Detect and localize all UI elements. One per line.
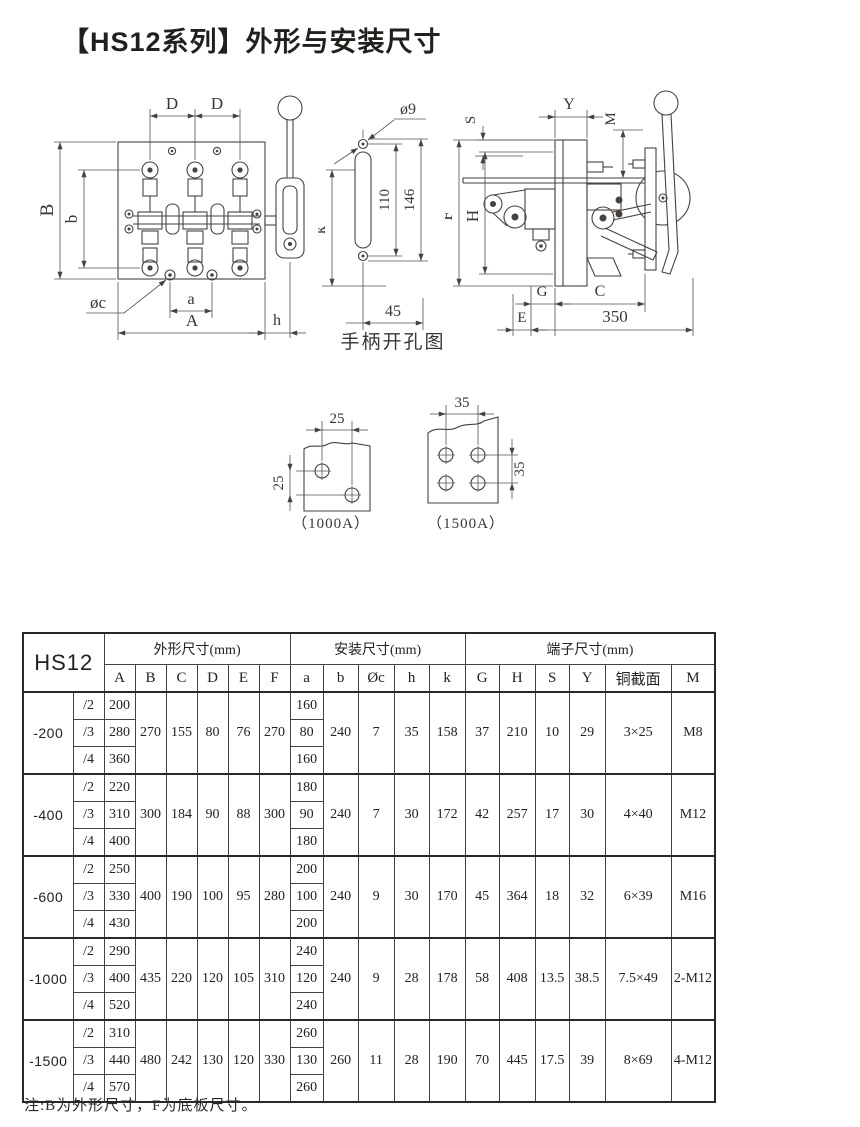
table-cell: 220: [166, 938, 197, 1020]
table-cell: 105: [228, 938, 259, 1020]
group-header-terminal: 端子尺寸(mm): [465, 633, 715, 665]
dim-label-h: h: [273, 312, 281, 329]
table-row: -1000/2290435220120105310240240928178584…: [23, 938, 715, 966]
cutout-shape: [355, 130, 371, 330]
table-cell: 18: [535, 856, 569, 938]
model-cell: -200: [23, 692, 73, 774]
table-cell: 58: [465, 938, 499, 1020]
column-header: E: [228, 665, 259, 693]
dim-label-110: 110: [377, 189, 393, 211]
table-cell: 170: [429, 856, 465, 938]
column-header: Y: [569, 665, 605, 693]
table-cell: 430: [104, 911, 135, 939]
column-header: C: [166, 665, 197, 693]
dim-label-D2: D: [211, 94, 223, 113]
column-header: a: [290, 665, 323, 693]
column-header: h: [394, 665, 429, 693]
variant-cell: /3: [73, 966, 104, 993]
table-row: -200/22002701558076270160240735158372101…: [23, 692, 715, 720]
table-cell: 160: [290, 747, 323, 775]
dim-label-phi9: ø9: [400, 101, 416, 118]
table-cell: 270: [135, 692, 166, 774]
cutout-dimensions: ø9 110 146 k: [318, 101, 428, 330]
variant-cell: /2: [73, 774, 104, 802]
column-header: F: [259, 665, 290, 693]
table-cell: 260: [290, 1075, 323, 1103]
table-row: -400/22203001849088300180240730172422571…: [23, 774, 715, 802]
table-cell: 7: [358, 692, 394, 774]
dim-label-E: E: [517, 310, 526, 326]
table-cell: 360: [104, 747, 135, 775]
dim-label-25h: 25: [330, 411, 345, 427]
page-title: 【HS12系列】外形与安装尺寸: [62, 20, 442, 59]
figure-hole-1500A: 35 35: [396, 391, 536, 515]
table-cell: 445: [499, 1020, 535, 1102]
table-cell: 220: [104, 774, 135, 802]
terminal-plate-1000A: [304, 443, 370, 511]
front-view-dimensions: D D B b øc a: [40, 94, 306, 340]
column-header: H: [499, 665, 535, 693]
dim-label-G: G: [537, 284, 548, 300]
table-cell: 172: [429, 774, 465, 856]
hole-1000A-caption: （1000A）: [266, 512, 396, 533]
table-cell: 210: [499, 692, 535, 774]
footnote: 注:B为外形尺寸，F为底板尺寸。: [24, 1094, 258, 1115]
table-cell: 364: [499, 856, 535, 938]
table-cell: 11: [358, 1020, 394, 1102]
model-cell: -1000: [23, 938, 73, 1020]
table-cell: 95: [228, 856, 259, 938]
table-cell: 4×40: [605, 774, 671, 856]
table-cell: 270: [259, 692, 290, 774]
dim-label-Y: Y: [563, 96, 575, 113]
table-cell: 90: [197, 774, 228, 856]
table-cell: 130: [197, 1020, 228, 1102]
table-cell: 520: [104, 993, 135, 1021]
dim-label-a: a: [187, 291, 194, 308]
table-cell: 10: [535, 692, 569, 774]
variant-cell: /4: [73, 747, 104, 775]
variant-cell: /2: [73, 856, 104, 884]
table-row: -600/22504001901009528020024093017045364…: [23, 856, 715, 884]
table-cell: 310: [259, 938, 290, 1020]
dim-label-k: k: [318, 226, 329, 234]
dim-label-F: F: [445, 211, 456, 220]
table-cell: 120: [290, 966, 323, 993]
table-cell: 240: [323, 692, 358, 774]
table-cell: 240: [323, 774, 358, 856]
variant-cell: /3: [73, 720, 104, 747]
table-cell: 29: [569, 692, 605, 774]
table-cell: 400: [135, 856, 166, 938]
table-cell: 28: [394, 938, 429, 1020]
table-cell: 17: [535, 774, 569, 856]
table-cell: 240: [290, 938, 323, 966]
figure-side-view: S Y M F H: [445, 86, 725, 351]
table-cell: 88: [228, 774, 259, 856]
variant-cell: /4: [73, 911, 104, 939]
table-cell: 408: [499, 938, 535, 1020]
table-cell: 480: [135, 1020, 166, 1102]
table-cell: 190: [429, 1020, 465, 1102]
dimension-table: HS12 外形尺寸(mm) 安装尺寸(mm) 端子尺寸(mm) ABCDEFab…: [22, 632, 716, 1103]
table-cell: 240: [290, 993, 323, 1021]
table-cell: 178: [429, 938, 465, 1020]
table-cell: 6×39: [605, 856, 671, 938]
column-header: S: [535, 665, 569, 693]
table-cell: 37: [465, 692, 499, 774]
dim-label-C: C: [595, 283, 606, 300]
table-cell: 100: [290, 884, 323, 911]
table-cell: 200: [104, 692, 135, 720]
table-cell: 180: [290, 774, 323, 802]
model-cell: -1500: [23, 1020, 73, 1102]
table-cell: 310: [104, 1020, 135, 1048]
variant-cell: /4: [73, 829, 104, 857]
switch-poles: [133, 162, 260, 276]
terminal-plate-1500A: [428, 417, 498, 503]
table-cell: 260: [323, 1020, 358, 1102]
table-cell: 200: [290, 911, 323, 939]
variant-cell: /4: [73, 993, 104, 1021]
table-cell: 280: [259, 856, 290, 938]
table-cell: 160: [290, 692, 323, 720]
column-header: 铜截面: [605, 665, 671, 693]
table-cell: 300: [135, 774, 166, 856]
table-cell: 8×69: [605, 1020, 671, 1102]
column-header: Øc: [358, 665, 394, 693]
table-cell: 130: [290, 1048, 323, 1075]
table-row: -1500/2310480242130120330260260112819070…: [23, 1020, 715, 1048]
table-cell: 290: [104, 938, 135, 966]
variant-cell: /3: [73, 884, 104, 911]
table-cell: 310: [104, 802, 135, 829]
dimension-table-wrap: HS12 外形尺寸(mm) 安装尺寸(mm) 端子尺寸(mm) ABCDEFab…: [22, 632, 716, 1103]
hole-1000A-dimensions: 25 25: [271, 411, 368, 511]
table-cell: 120: [228, 1020, 259, 1102]
table-cell: 70: [465, 1020, 499, 1102]
table-cell: 180: [290, 829, 323, 857]
table-cell: 257: [499, 774, 535, 856]
table-cell: 280: [104, 720, 135, 747]
table-cell: 30: [569, 774, 605, 856]
dim-label-S: S: [463, 116, 479, 124]
table-cell: 42: [465, 774, 499, 856]
operating-handle: [265, 96, 304, 338]
series-header: HS12: [23, 633, 104, 692]
dim-label-25v: 25: [271, 476, 287, 491]
group-header-outline: 外形尺寸(mm): [104, 633, 290, 665]
table-cell: 400: [104, 829, 135, 857]
figure-hole-1000A: 25 25: [266, 403, 396, 515]
figure-front-view: D D B b øc a: [40, 86, 340, 371]
column-header: M: [671, 665, 715, 693]
table-cell: 7: [358, 774, 394, 856]
table-cell: M8: [671, 692, 715, 774]
table-cell: 32: [569, 856, 605, 938]
table-cell: M16: [671, 856, 715, 938]
variant-cell: /3: [73, 802, 104, 829]
table-cell: 90: [290, 802, 323, 829]
model-cell: -600: [23, 856, 73, 938]
table-cell: 330: [104, 884, 135, 911]
table-cell: 7.5×49: [605, 938, 671, 1020]
variant-cell: /3: [73, 1048, 104, 1075]
table-cell: 80: [197, 692, 228, 774]
table-cell: 80: [290, 720, 323, 747]
table-cell: 330: [259, 1020, 290, 1102]
table-cell: 76: [228, 692, 259, 774]
column-header: B: [135, 665, 166, 693]
table-cell: 35: [394, 692, 429, 774]
table-cell: M12: [671, 774, 715, 856]
side-mechanism: [463, 91, 690, 286]
table-cell: 13.5: [535, 938, 569, 1020]
table-cell: 30: [394, 856, 429, 938]
variant-cell: /2: [73, 938, 104, 966]
table-cell: 260: [290, 1020, 323, 1048]
dim-label-35h: 35: [455, 395, 470, 411]
dim-label-146: 146: [402, 188, 418, 211]
table-cell: 240: [323, 856, 358, 938]
dim-label-D1: D: [166, 94, 178, 113]
dim-label-phiC: øc: [90, 293, 107, 312]
table-cell: 100: [197, 856, 228, 938]
table-cell: 200: [290, 856, 323, 884]
table-cell: 9: [358, 856, 394, 938]
dim-label-b: b: [62, 215, 81, 224]
dim-label-H: H: [463, 210, 482, 222]
table-cell: 3×25: [605, 692, 671, 774]
table-cell: 250: [104, 856, 135, 884]
table-cell: 184: [166, 774, 197, 856]
catalog-page: 【HS12系列】外形与安装尺寸: [0, 0, 860, 1127]
column-header: A: [104, 665, 135, 693]
dim-label-350: 350: [602, 307, 628, 326]
table-cell: 400: [104, 966, 135, 993]
table-cell: 435: [135, 938, 166, 1020]
table-cell: 17.5: [535, 1020, 569, 1102]
table-cell: 30: [394, 774, 429, 856]
table-cell: 300: [259, 774, 290, 856]
dim-label-A: A: [186, 311, 199, 330]
model-cell: -400: [23, 774, 73, 856]
table-cell: 440: [104, 1048, 135, 1075]
group-header-mounting: 安装尺寸(mm): [290, 633, 465, 665]
dim-label-M: M: [603, 112, 619, 125]
table-cell: 4-M12: [671, 1020, 715, 1102]
column-header: k: [429, 665, 465, 693]
table-cell: 38.5: [569, 938, 605, 1020]
table-cell: 190: [166, 856, 197, 938]
table-cell: 45: [465, 856, 499, 938]
column-header: G: [465, 665, 499, 693]
column-header: b: [323, 665, 358, 693]
dim-label-35v: 35: [512, 462, 528, 477]
table-cell: 9: [358, 938, 394, 1020]
hole-1500A-caption: （1500A）: [396, 512, 536, 533]
table-cell: 240: [323, 938, 358, 1020]
variant-cell: /2: [73, 1020, 104, 1048]
table-cell: 155: [166, 692, 197, 774]
variant-cell: /2: [73, 692, 104, 720]
table-cell: 2-M12: [671, 938, 715, 1020]
table-cell: 120: [197, 938, 228, 1020]
table-cell: 242: [166, 1020, 197, 1102]
table-cell: 28: [394, 1020, 429, 1102]
table-cell: 158: [429, 692, 465, 774]
dim-label-B: B: [40, 204, 58, 217]
dim-label-45: 45: [385, 303, 401, 320]
table-cell: 39: [569, 1020, 605, 1102]
column-header: D: [197, 665, 228, 693]
